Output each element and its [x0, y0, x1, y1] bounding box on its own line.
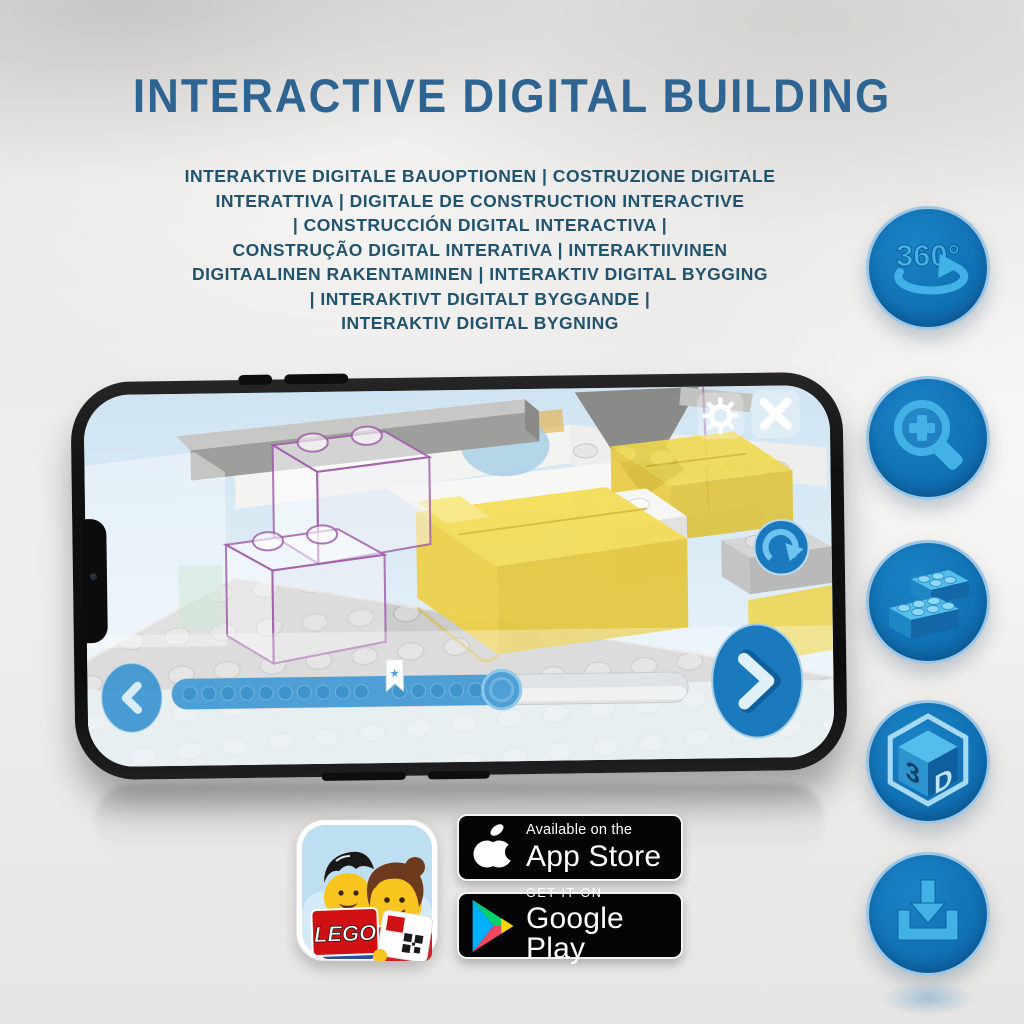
phone-mockup: ★ [70, 372, 847, 781]
subtitle-block: INTERAKTIVE DIGITALE BAUOPTIONEN | COSTR… [112, 164, 848, 336]
phone-notch [82, 519, 108, 643]
settings-gear-button[interactable] [697, 392, 744, 439]
app-store-badge[interactable]: Available on the App Store [457, 814, 683, 881]
subtitle-line: DIGITAALINEN RAKENTAMINEN | INTERAKTIV D… [112, 262, 848, 287]
zoom-in-icon [866, 376, 990, 500]
360-glyph: 360° [880, 220, 976, 316]
3d-cube-glyph: 3 D [881, 713, 975, 811]
magnifier-glyph [882, 392, 974, 484]
rotate-button[interactable] [754, 520, 809, 575]
page-title: INTERACTIVE DIGITAL BUILDING [0, 70, 1024, 124]
app-screen: ★ [83, 385, 834, 767]
lego-app-ui: ★ [83, 385, 834, 767]
store-badges: Available on the App Store GET IT ON Goo… [457, 814, 683, 959]
app-store-title: App Store [526, 842, 661, 872]
subtitle-line: | INTERAKTIVT DIGITALT BYGGANDE | [112, 287, 848, 312]
next-step-button[interactable] [711, 624, 803, 738]
circle-reflection [880, 982, 976, 1016]
brick-building-icon [866, 540, 990, 664]
360-rotation-icon: 360° [866, 206, 990, 330]
google-play-logo-icon [472, 900, 514, 952]
lego-logo: LEGO [311, 908, 379, 956]
apple-logo-icon [472, 822, 516, 874]
app-store-tagline: Available on the [526, 823, 661, 838]
lego-life-app-icon[interactable]: LEGO [296, 819, 438, 961]
subtitle-line: INTERAKTIV DIGITAL BYGNING [112, 311, 848, 336]
app-icon-art: LEGO [296, 819, 438, 961]
previous-step-button[interactable] [101, 663, 162, 733]
close-button[interactable] [751, 389, 800, 438]
3d-view-icon: 3 D [866, 700, 990, 824]
brick-glyph [881, 555, 975, 649]
download-icon [866, 852, 990, 976]
svg-text:★: ★ [390, 668, 400, 680]
google-play-title: Google Play [526, 904, 681, 964]
subtitle-line: | CONSTRUCCIÓN DIGITAL INTERACTIVA | [112, 213, 848, 238]
google-play-badge[interactable]: GET IT ON Google Play [457, 892, 683, 959]
phone-power-button [238, 375, 272, 385]
google-play-tagline: GET IT ON [526, 887, 681, 900]
svg-text:LEGO: LEGO [313, 920, 376, 947]
phone-bottom-button [428, 771, 490, 780]
subtitle-line: CONSTRUÇÃO DIGITAL INTERATIVA | INTERAKT… [112, 238, 848, 263]
slider-handle[interactable] [482, 670, 521, 709]
camera-dot [90, 573, 97, 580]
poster: INTERACTIVE DIGITAL BUILDING INTERAKTIVE… [0, 0, 1024, 1024]
subtitle-line: INTERAKTIVE DIGITALE BAUOPTIONEN | COSTR… [112, 164, 848, 189]
phone-bottom-button [322, 772, 406, 781]
phone-volume-button [284, 374, 348, 385]
subtitle-line: INTERATTIVA | DIGITALE DE CONSTRUCTION I… [112, 189, 848, 214]
download-glyph [884, 870, 972, 958]
